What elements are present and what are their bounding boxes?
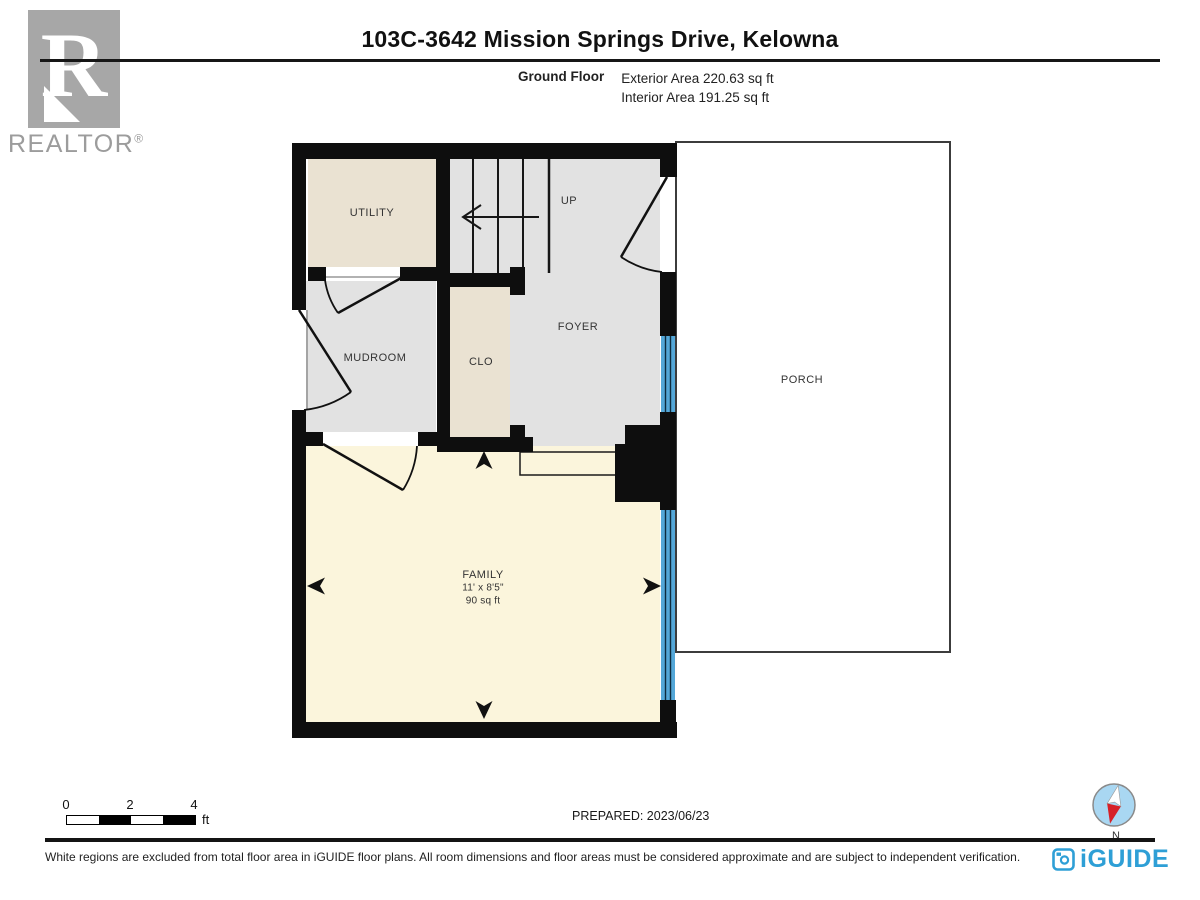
floor-plan [0, 0, 1200, 900]
porch-area [676, 142, 950, 652]
family-window-icon [661, 510, 675, 700]
scale-segment [67, 816, 99, 824]
foyer-window-icon [661, 336, 675, 412]
room-label-porch: PORCH [781, 374, 823, 386]
iguide-wordmark: iGUIDE [1080, 845, 1169, 874]
header-rule [40, 59, 1160, 62]
scale-unit: ft [202, 812, 209, 827]
room-label-clo: CLO [469, 356, 493, 368]
scale-segment [131, 816, 163, 824]
family-sqft: 90 sq ft [466, 596, 500, 607]
windows [661, 336, 675, 700]
room-label-up: UP [561, 195, 577, 207]
family-dimensions: 11' x 8'5" [462, 583, 503, 594]
scale-tick-4: 4 [190, 797, 197, 812]
room-label-mudroom: MUDROOM [344, 352, 407, 364]
iguide-logo: iGUIDE [1052, 845, 1169, 874]
iguide-icon [1052, 848, 1075, 871]
disclaimer-text: White regions are excluded from total fl… [45, 850, 1045, 864]
page: R REALTOR® 103C-3642 Mission Springs Dri… [0, 0, 1200, 900]
room-label-utility: UTILITY [350, 207, 394, 219]
room-label-foyer: FOYER [558, 321, 598, 333]
scale-bar [66, 815, 196, 825]
scale-segment [99, 816, 131, 824]
scale-segment [163, 816, 195, 824]
scale-tick-2: 2 [126, 797, 133, 812]
compass-icon: N [1085, 779, 1143, 841]
room-label-family: FAMILY [462, 569, 503, 581]
entry-step [520, 452, 625, 475]
footer-rule [45, 838, 1155, 842]
foyer-area [510, 273, 660, 444]
prepared-date: PREPARED: 2023/06/23 [572, 809, 709, 823]
scale-tick-0: 0 [62, 797, 69, 812]
